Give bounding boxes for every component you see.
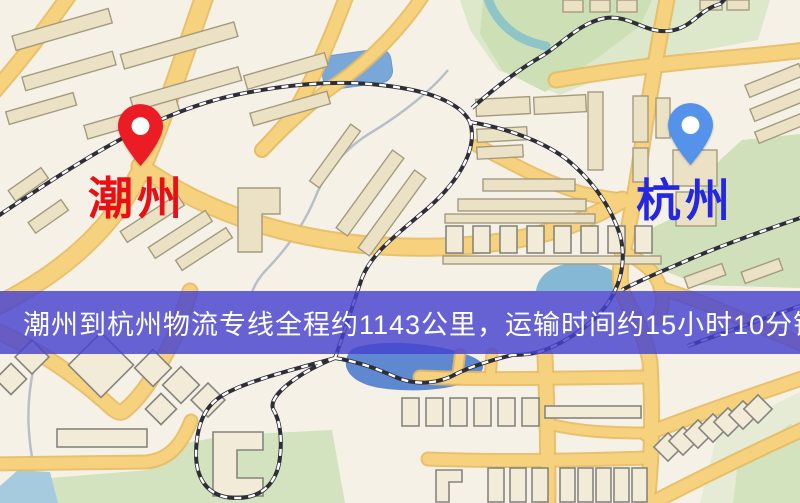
map-canvas: 潮州到杭州物流专线全程约1143公里，运输时间约15小时10分钟. 潮州 杭州 [0,0,800,503]
origin-pin-dot [132,117,150,135]
route-info-banner: 潮州到杭州物流专线全程约1143公里，运输时间约15小时10分钟. [0,291,800,354]
street-map-illustration [0,0,800,503]
destination-pin-dot [682,116,700,134]
destination-city-label: 杭州 [636,179,734,224]
destination-pin-icon [668,101,713,167]
origin-pin-icon [118,102,163,168]
origin-city-label: 潮州 [88,177,186,222]
route-info-text: 潮州到杭州物流专线全程约1143公里，运输时间约15小时10分钟. [0,303,800,342]
